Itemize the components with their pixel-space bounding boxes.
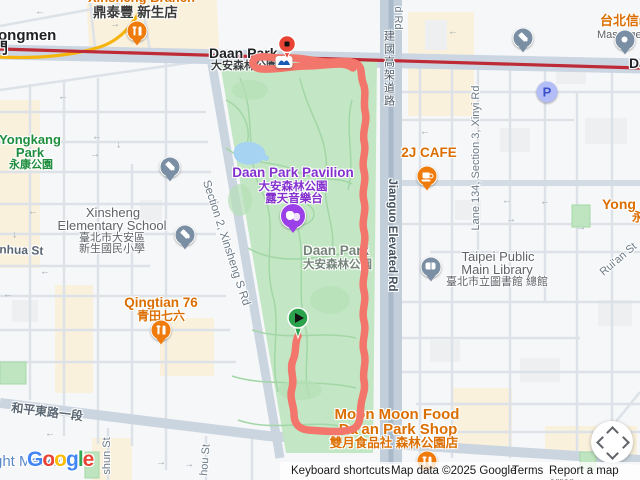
route-start-marker[interactable] <box>288 308 308 338</box>
terms-link[interactable]: Terms <box>512 465 543 477</box>
google-logo-letter: e <box>83 448 94 471</box>
map-canvas[interactable]: ongmen 門 Daan Park 大安森林公園 Da 建國高架道路 Jian… <box>0 0 640 480</box>
pan-right-icon[interactable] <box>617 436 630 449</box>
pan-up-icon[interactable] <box>606 426 619 439</box>
marker-layer <box>0 0 640 480</box>
pan-down-icon[interactable] <box>606 447 619 460</box>
map-data-text: Map data ©2025 Google <box>391 465 516 477</box>
route-end-marker[interactable] <box>279 36 296 60</box>
keyboard-shortcuts-button[interactable]: Keyboard shortcuts <box>291 465 390 477</box>
google-logo-letter: G <box>27 448 42 471</box>
stop-icon <box>285 42 290 47</box>
report-map-error-link[interactable]: Report a map error <box>549 465 640 480</box>
pan-left-icon[interactable] <box>596 436 609 449</box>
pan-map-control[interactable] <box>591 421 633 463</box>
google-logo-letter: o <box>42 448 54 471</box>
google-logo-letter: o <box>54 448 66 471</box>
google-logo-letter: g <box>66 448 78 471</box>
google-logo[interactable]: Google <box>27 448 93 472</box>
